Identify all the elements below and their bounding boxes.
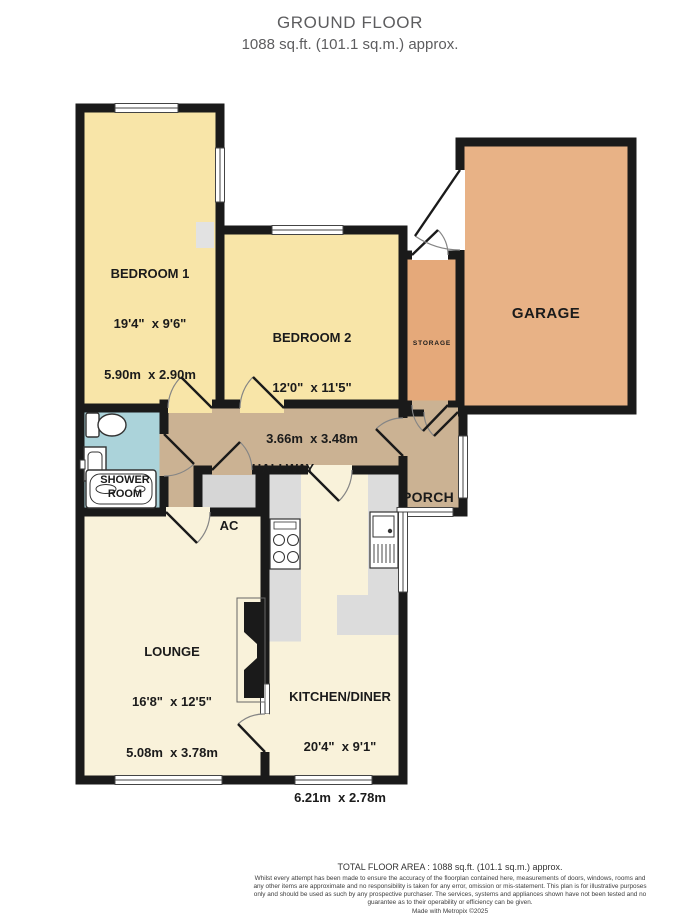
floorplan-page: GROUND FLOOR 1088 sq.ft. (101.1 sq.m.) a… [0,0,700,922]
kitchen-diner-dims-imperial: 20'4" x 9'1" [255,739,425,756]
lounge-dims-metric: 5.08m x 3.78m [92,745,252,762]
lounge-label: LOUNGE 16'8" x 12'5" 5.08m x 3.78m [92,610,252,796]
stove-icon [270,519,300,569]
kitchen-diner-label: KITCHEN/DINER 20'4" x 9'1" 6.21m x 2.78m [255,655,425,841]
porch-label: PORCH [388,452,468,543]
bedroom1-dims-metric: 5.90m x 2.90m [75,367,225,384]
kitchen-diner-dims-metric: 6.21m x 2.78m [255,790,425,807]
storage-label: STORAGE [402,323,462,365]
lounge-name: LOUNGE [92,644,252,661]
storage-name: STORAGE [402,340,462,348]
bedroom2-dims-imperial: 12'0" x 11'5" [237,380,387,397]
window-bedroom1-top [115,104,178,113]
garage-name: GARAGE [471,304,621,324]
shower-room-label: SHOWER ROOM [95,448,155,527]
disclaimer-text: Whilst every attempt has been made to en… [250,875,650,907]
door-garage-side [415,170,465,250]
window-bedroom2-top [272,226,343,235]
footer: TOTAL FLOOR AREA : 1088 sq.ft. (101.1 sq… [150,862,700,915]
porch-name: PORCH [388,488,468,506]
bedroom1-name: BEDROOM 1 [75,266,225,283]
bedroom1-dims-imperial: 19'4" x 9'6" [75,316,225,333]
ac-label: AC [207,484,251,568]
shower-room-name: SHOWER ROOM [95,474,155,500]
lounge-dims-imperial: 16'8" x 12'5" [92,694,252,711]
metropix-credit: Made with Metropix ©2025 [150,908,700,915]
ac-name: AC [207,518,251,535]
bedroom1-label: BEDROOM 1 19'4" x 9'6" 5.90m x 2.90m [75,232,225,418]
window-bedroom1-right [216,148,225,202]
hallway-name: HALLWAY [213,461,353,478]
kitchen-diner-name: KITCHEN/DINER [255,689,425,706]
bedroom2-name: BEDROOM 2 [237,330,387,347]
total-floor-area: TOTAL FLOOR AREA : 1088 sq.ft. (101.1 sq… [150,862,700,872]
garage-label: GARAGE [471,265,621,363]
